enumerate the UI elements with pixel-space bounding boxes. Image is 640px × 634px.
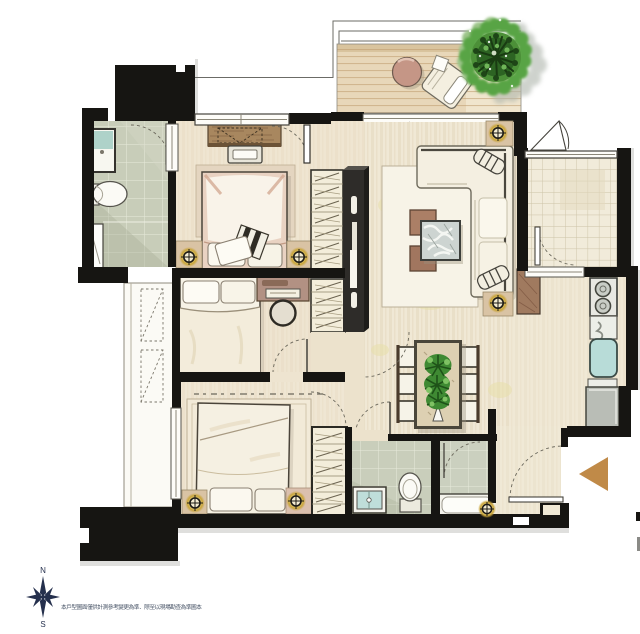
- svg-text:本戶型圖面僅供計測參考變更為準．際至以現場勘查為準圖本: 本戶型圖面僅供計測參考變更為準．際至以現場勘查為準圖本: [61, 603, 202, 611]
- svg-text:S: S: [40, 620, 45, 629]
- svg-text:N: N: [40, 566, 46, 575]
